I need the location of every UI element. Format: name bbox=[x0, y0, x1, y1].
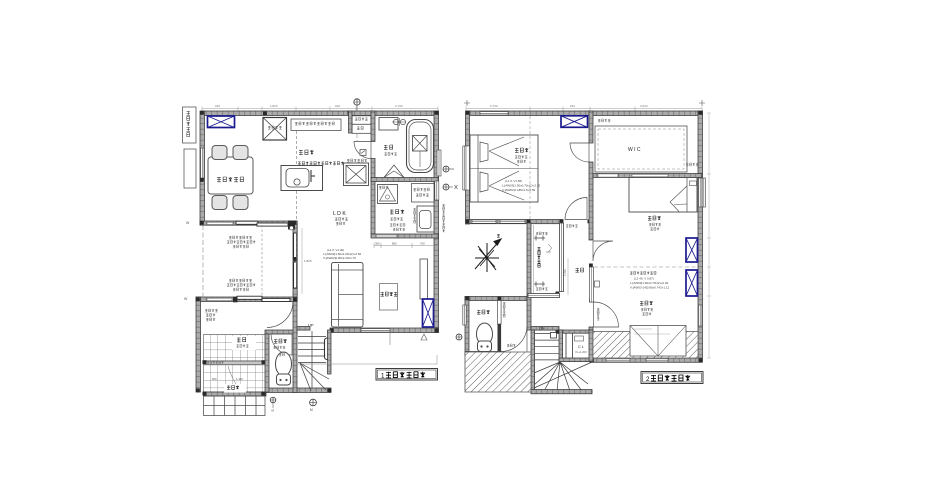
svg-text:910: 910 bbox=[215, 104, 220, 108]
svg-text:1,400: 1,400 bbox=[236, 377, 243, 381]
svg-text:1,825: 1,825 bbox=[304, 259, 312, 263]
svg-text:910: 910 bbox=[335, 104, 340, 108]
svg-text:700: 700 bbox=[420, 241, 425, 245]
svg-text:2,730: 2,730 bbox=[490, 104, 498, 108]
svg-text:M: M bbox=[310, 408, 313, 412]
svg-text:2,730: 2,730 bbox=[395, 104, 403, 108]
svg-text:1: 1 bbox=[381, 373, 385, 380]
svg-text:L D K: L D K bbox=[333, 211, 346, 217]
svg-text:600: 600 bbox=[212, 377, 217, 381]
svg-text:L:[AW03]1.50x0.70x(2)+2.15: L:[AW03]1.50x0.70x(2)+2.15 bbox=[502, 184, 540, 188]
svg-text:1,820: 1,820 bbox=[563, 269, 567, 276]
svg-text:V:[AW02]1.185x1.5+0.59: V:[AW02]1.185x1.5+0.59 bbox=[502, 188, 536, 192]
svg-text:300: 300 bbox=[375, 241, 380, 245]
svg-text:DN: DN bbox=[539, 327, 545, 331]
svg-text:L:[AW03]1.60x0.70x(2)+0.36: L:[AW03]1.60x0.70x(2)+0.36 bbox=[630, 281, 668, 285]
svg-text:W I C: W I C bbox=[628, 147, 641, 153]
svg-text:FL+1,200: FL+1,200 bbox=[576, 350, 588, 354]
svg-text:1,820: 1,820 bbox=[270, 104, 278, 108]
svg-text:2: 2 bbox=[646, 376, 650, 383]
svg-text:910: 910 bbox=[570, 104, 575, 108]
svg-text:(L2 45, V 0.87): (L2 45, V 0.87) bbox=[634, 277, 654, 281]
svg-text:V:[AW03-14]0.80x0.742+1.12: V:[AW03-14]0.80x0.742+1.12 bbox=[630, 286, 670, 290]
svg-text:(L1 Ⅱ, V1.5Ⅱ): (L1 Ⅱ, V1.5Ⅱ) bbox=[505, 179, 522, 183]
svg-text:3,640: 3,640 bbox=[640, 104, 648, 108]
svg-text:800: 800 bbox=[392, 241, 397, 245]
svg-text:C L: C L bbox=[578, 345, 584, 349]
svg-text:V:[AW02]0.80x2.20x1.76: V:[AW02]0.80x2.20x1.76 bbox=[323, 256, 356, 260]
